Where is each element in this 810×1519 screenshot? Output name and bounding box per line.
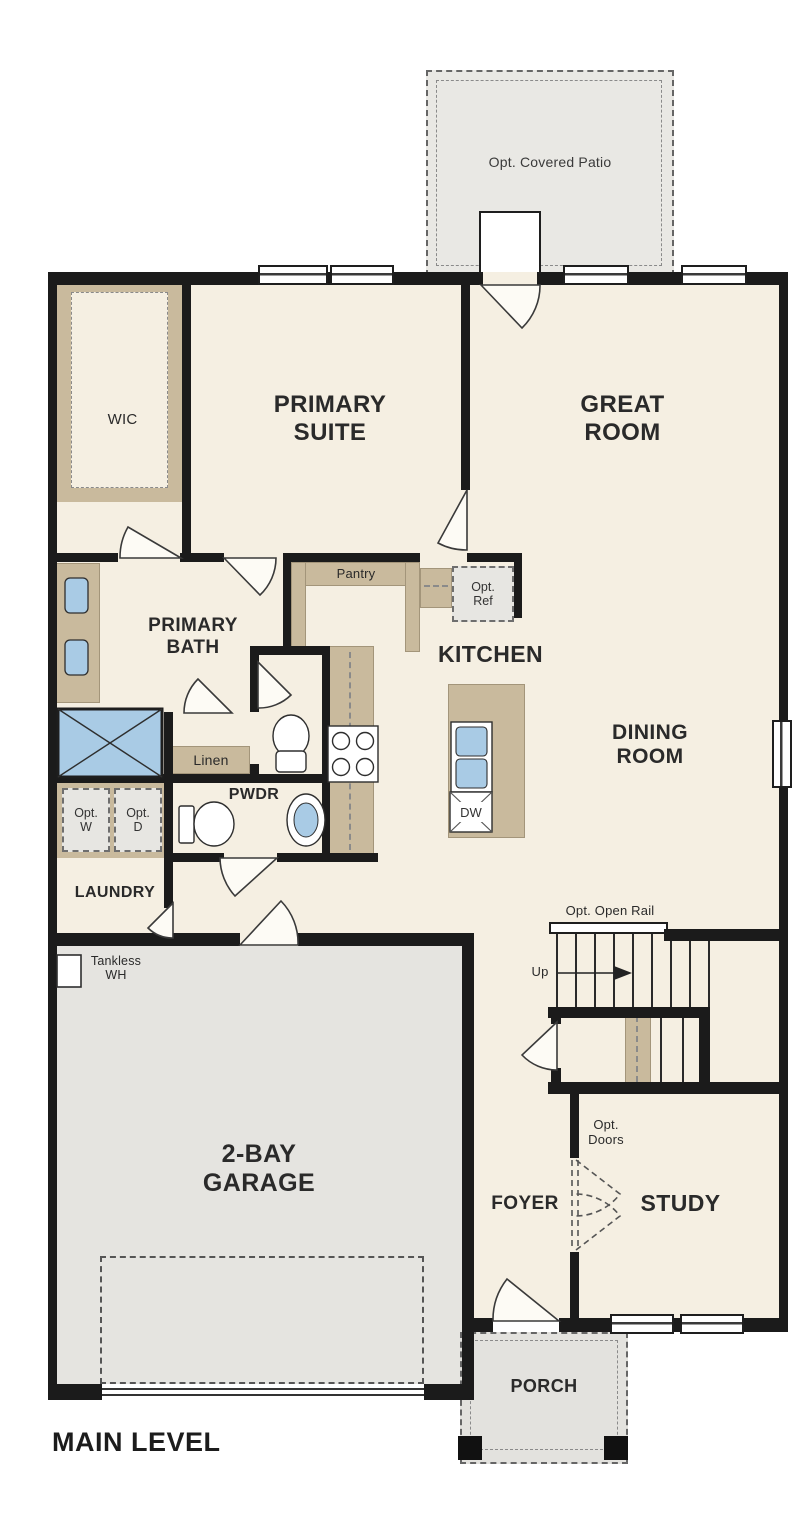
label-great-room: GREAT ROOM (545, 390, 700, 448)
tankless-wh-unit (57, 955, 81, 987)
patio-door-swing (481, 285, 540, 328)
garage-door-swing (240, 901, 298, 945)
opt-door-swing-upper (576, 1160, 620, 1216)
bath-door-swing (224, 558, 276, 595)
label-porch: PORCH (506, 1374, 582, 1398)
label-primary-suite: PRIMARY SUITE (250, 390, 410, 448)
opt-door-swing-lower (576, 1194, 620, 1250)
wc-door-swing (258, 662, 291, 708)
label-kitchen: KITCHEN (428, 640, 553, 668)
vanity-sink-2 (65, 640, 88, 675)
toilet-water-closet (273, 715, 309, 772)
shower-door-swing (184, 679, 232, 713)
label-primary-bath: PRIMARY BATH (133, 612, 253, 662)
label-dining-room: DINING ROOM (590, 716, 710, 774)
dishwasher-label: DW (456, 802, 486, 822)
stair-up-arrow (558, 966, 632, 980)
laundry-door-swing (148, 903, 173, 938)
front-door-swing (493, 1279, 559, 1321)
label-laundry: LAUNDRY (60, 882, 170, 904)
label-linen: Linen (176, 750, 246, 770)
powder-sink (287, 794, 325, 846)
page-title: MAIN LEVEL (52, 1426, 302, 1460)
label-opt-doors: Opt. Doors (580, 1112, 632, 1152)
label-wic: WIC (80, 410, 165, 430)
island-sink (451, 722, 492, 792)
wic-door-swing (120, 527, 181, 558)
label-study: STUDY (633, 1189, 728, 1217)
label-up: Up (526, 963, 554, 981)
label-opt-open-rail: Opt. Open Rail (548, 902, 672, 920)
label-pantry: Pantry (306, 564, 406, 584)
label-garage: 2-BAY GARAGE (185, 1138, 333, 1200)
label-tankless-wh: Tankless WH (80, 950, 152, 986)
understair-closet-door-swing (522, 1022, 557, 1070)
label-covered-patio: Opt. Covered Patio (436, 152, 664, 172)
pwdr-door-swing (220, 858, 277, 896)
label-foyer: FOYER (485, 1192, 565, 1216)
toilet-powder (179, 802, 234, 846)
cooktop (328, 726, 378, 782)
label-pwdr: PWDR (222, 785, 286, 805)
floor-plan: Opt. Ref Opt. W Opt. D (0, 0, 810, 1519)
vanity-sink-1 (65, 578, 88, 613)
suite-kitchen-door-swing (438, 490, 467, 550)
shower (58, 709, 162, 777)
